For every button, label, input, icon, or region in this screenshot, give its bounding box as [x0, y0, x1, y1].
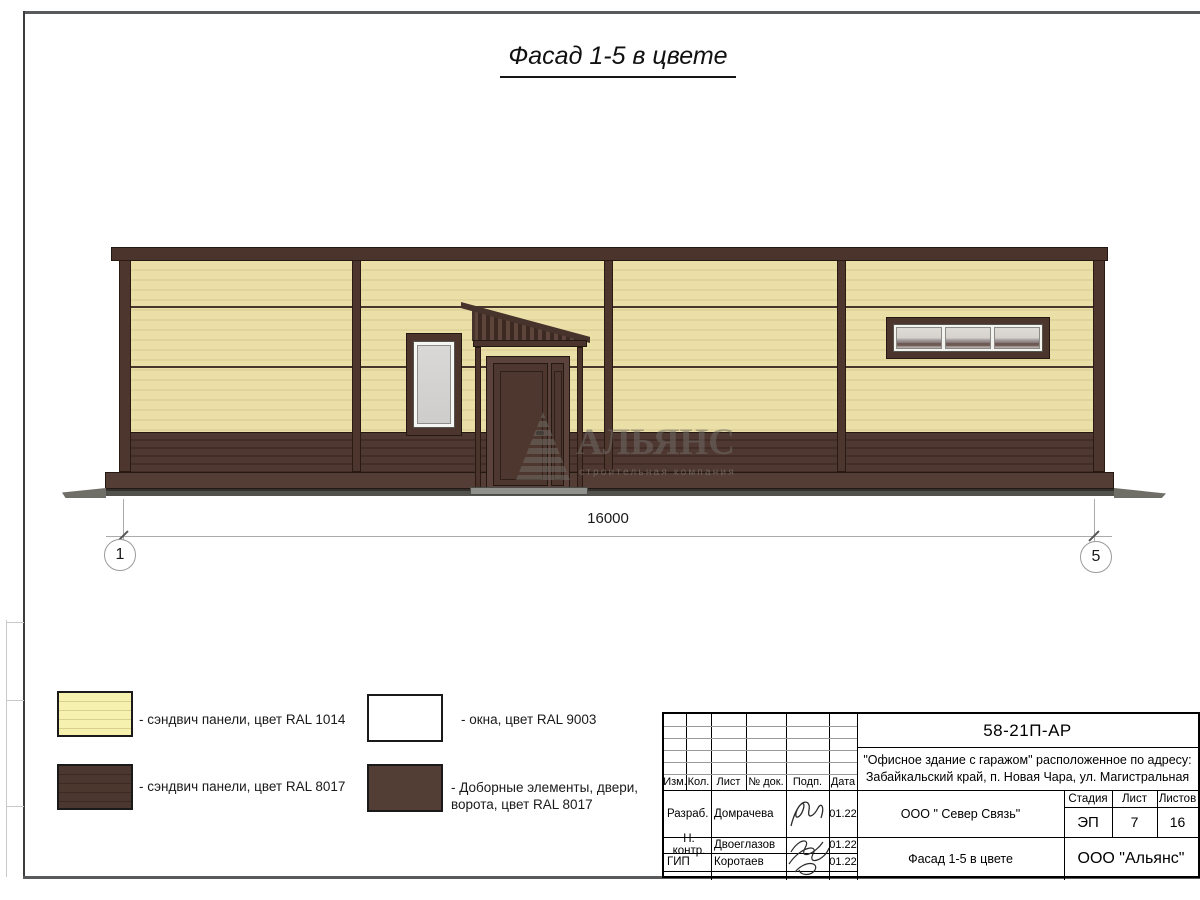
tb-header-izm: Изм. [664, 774, 686, 790]
tb-contractor: ООО " Север Связь" [857, 790, 1064, 837]
tb-header-kol: Кол. [686, 774, 711, 790]
tb-header-podp: Подп. [786, 774, 829, 790]
extension-line-right [1094, 499, 1095, 547]
canopy-bottom-fascia [473, 340, 587, 347]
dimension-line [106, 536, 1112, 537]
canopy-left-edge [472, 306, 475, 341]
signature-scribble [787, 794, 829, 836]
watermark-tagline: строительная компания [579, 467, 736, 478]
margin-stamp-line [6, 620, 7, 877]
drawing-title: Фасад 1-5 в цвете [0, 42, 1200, 78]
tb-sheet-name: Фасад 1-5 в цвете [857, 837, 1064, 880]
watermark-name: АЛЬЯНС [576, 424, 735, 461]
signature-scribble [785, 836, 831, 878]
entrance-step [470, 487, 588, 495]
tb-sheets-label: Листов [1157, 790, 1198, 807]
legend-swatch-brown-panels [57, 764, 133, 810]
dimension-value: 16000 [508, 510, 708, 527]
ground-line [105, 489, 1114, 496]
drawing-sheet: Фасад 1-5 в цвете [0, 0, 1200, 900]
tb-header-data: Дата [829, 774, 857, 790]
tb-sheet-label: Лист [1112, 790, 1157, 807]
legend-label: - Доборные элементы, двери, ворота, цвет… [451, 779, 638, 813]
legend-label: - сэндвич панели, цвет RAL 1014 [139, 711, 345, 728]
window-pane [945, 327, 991, 349]
canopy-post-left [475, 347, 481, 490]
axis-marker-1-label: 1 [116, 546, 125, 564]
legend-label: - окна, цвет RAL 9003 [461, 711, 596, 728]
frame-left-line [23, 11, 25, 879]
tb-date: 01.22 [829, 790, 857, 837]
tb-sheets-value: 16 [1157, 807, 1198, 837]
ground-slope-left [62, 488, 106, 498]
tb-date: 01.22 [829, 853, 857, 871]
axis-marker-5: 5 [1080, 541, 1112, 573]
title-block: Изм. Кол. Лист № док. Подп. Дата 58-21П-… [662, 712, 1200, 878]
margin-stamp-line [6, 806, 24, 807]
company-watermark: АЛЬЯНС строительная компания [516, 410, 736, 480]
tb-date: 01.22 [829, 837, 857, 853]
window-pane [994, 327, 1040, 349]
tb-doc-code: 58-21П-АР [857, 714, 1198, 747]
margin-stamp-line [6, 622, 24, 623]
tb-project-name: "Офисное здание с гаражом" расположенное… [857, 747, 1198, 790]
tb-name: Домрачева [711, 790, 786, 837]
tb-stage-value: ЭП [1064, 807, 1112, 837]
tb-stage-label: Стадия [1064, 790, 1112, 807]
margin-stamp-line [6, 700, 24, 701]
pilaster [837, 260, 846, 472]
tb-name: Двоеглазов [711, 837, 786, 853]
window-right-frame [893, 324, 1043, 352]
corner-pilaster-left [119, 260, 131, 472]
window-pane [896, 327, 942, 349]
legend-swatch-doors [367, 764, 443, 812]
legend-swatch-cream-panels [57, 691, 133, 737]
tb-header-list: Лист [711, 774, 746, 790]
axis-marker-5-label: 5 [1092, 548, 1101, 566]
pilaster [352, 260, 361, 472]
tb-role: ГИП [664, 853, 711, 871]
alyans-triangle-logo-icon [516, 412, 570, 480]
tb-role: Н. контр. [664, 837, 711, 853]
window-left-glass [417, 345, 451, 424]
drawing-title-text: Фасад 1-5 в цвете [500, 42, 735, 78]
frame-top-line [23, 11, 1200, 14]
tb-sheet-value: 7 [1112, 807, 1157, 837]
tb-role: Разраб. [664, 790, 711, 837]
tb-organization: ООО "Альянс" [1064, 837, 1198, 880]
legend-label: - сэндвич панели, цвет RAL 8017 [139, 778, 345, 795]
ground-slope-right [1114, 488, 1166, 498]
axis-marker-1: 1 [104, 539, 136, 571]
legend-swatch-windows [367, 694, 443, 742]
tb-header-dok: № док. [746, 774, 786, 790]
parapet-band [111, 247, 1108, 261]
tb-name: Коротаев [711, 853, 786, 871]
corner-pilaster-right [1093, 260, 1105, 472]
